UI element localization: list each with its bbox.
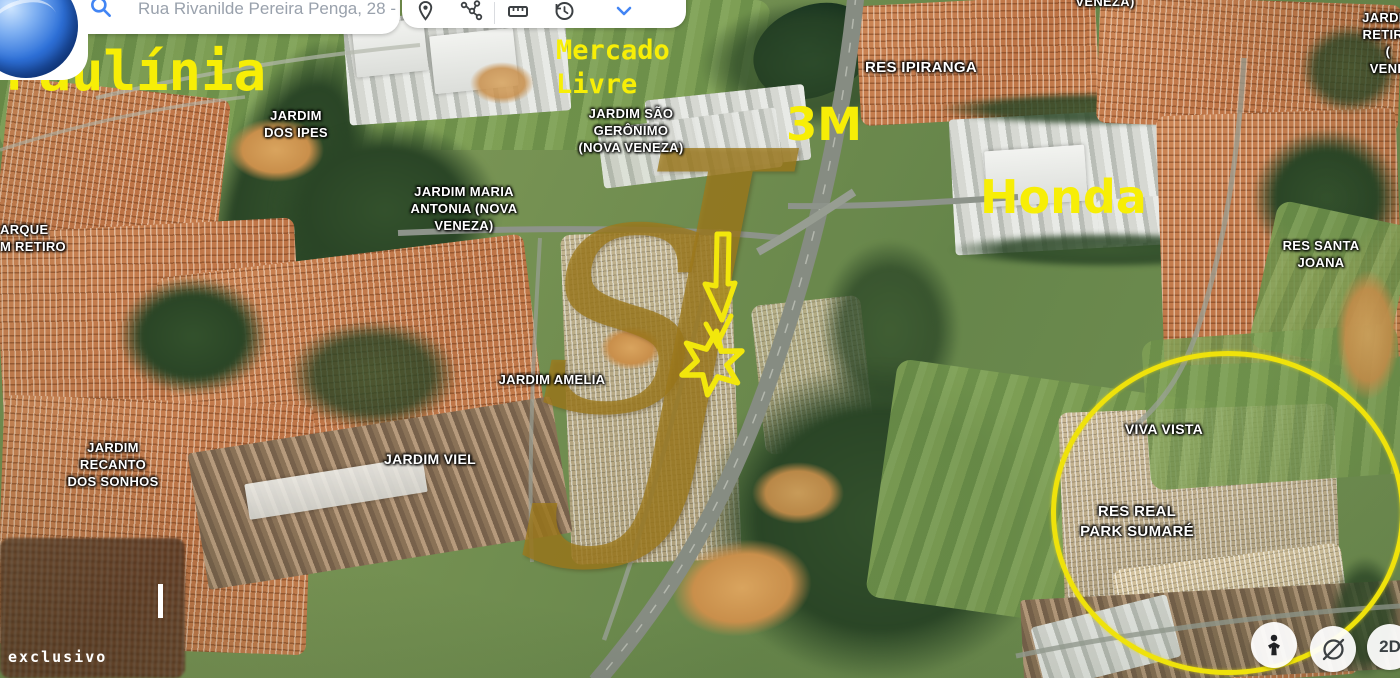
map-label-res-santa-joana: RES SANTA JOANA <box>1283 238 1360 272</box>
history-button[interactable] <box>541 0 587 28</box>
location-pin-icon <box>414 0 437 23</box>
search-input[interactable] <box>136 0 430 20</box>
map-label-res-real-park: RES REAL PARK SUMARÉ <box>1080 502 1194 541</box>
map-label-jardim-retiro: JARDIM RETIRO ( VENE <box>1362 10 1400 78</box>
map-label-jardim-maria-antonia: JARDIM MARIA ANTONIA (NOVA VENEZA) <box>411 184 518 235</box>
view-2d-label: 2D <box>1379 637 1400 657</box>
toolbar-expand-button[interactable] <box>601 0 647 28</box>
rotate-view-button[interactable] <box>1310 626 1356 672</box>
annotation-honda: Honda <box>980 170 1147 224</box>
search-bar[interactable] <box>40 0 400 34</box>
chevron-down-icon <box>612 0 636 23</box>
ruler-button[interactable] <box>495 0 541 28</box>
map-label-res-ipiranga: RES IPIRANGA <box>865 58 977 78</box>
satellite-map-view[interactable]: S J VENEZA) JARDIM RETIRO ( VENE JARDIM … <box>0 0 1400 678</box>
pegman-button[interactable] <box>1251 622 1297 668</box>
location-pin-button[interactable] <box>402 0 448 28</box>
route-icon <box>459 0 483 23</box>
history-icon <box>552 0 576 23</box>
map-label-jardim-viel: JARDIM VIEL <box>384 450 476 468</box>
pegman-icon <box>1261 632 1287 658</box>
map-label-jardim-amelia: JARDIM AMELIA <box>499 372 606 389</box>
search-icon <box>88 0 114 20</box>
rotate-view-icon <box>1320 636 1347 663</box>
map-label-veneza-partial: VENEZA) <box>1075 0 1134 11</box>
map-label-jardim-recanto: JARDIM RECANTO DOS SONHOS <box>67 440 158 491</box>
white-tick-mark <box>158 584 163 618</box>
annotation-3m: 3M <box>786 98 862 151</box>
watermark-credit: exclusivo <box>8 648 107 666</box>
ruler-icon <box>506 0 530 23</box>
map-label-jardim-sao-geronimo: JARDIM SÃO GERÔNIMO (NOVA VENEZA) <box>578 106 683 157</box>
map-label-jardim-dos-ipes: JARDIM DOS IPES <box>264 108 328 142</box>
route-button[interactable] <box>448 0 494 28</box>
map-label-viva-vista: VIVA VISTA <box>1125 420 1203 438</box>
map-toolbar <box>402 0 686 28</box>
annotation-mercado-livre: Mercado Livre <box>556 34 670 102</box>
map-label-parque-retiro: ARQUE M RETIRO <box>0 222 66 256</box>
